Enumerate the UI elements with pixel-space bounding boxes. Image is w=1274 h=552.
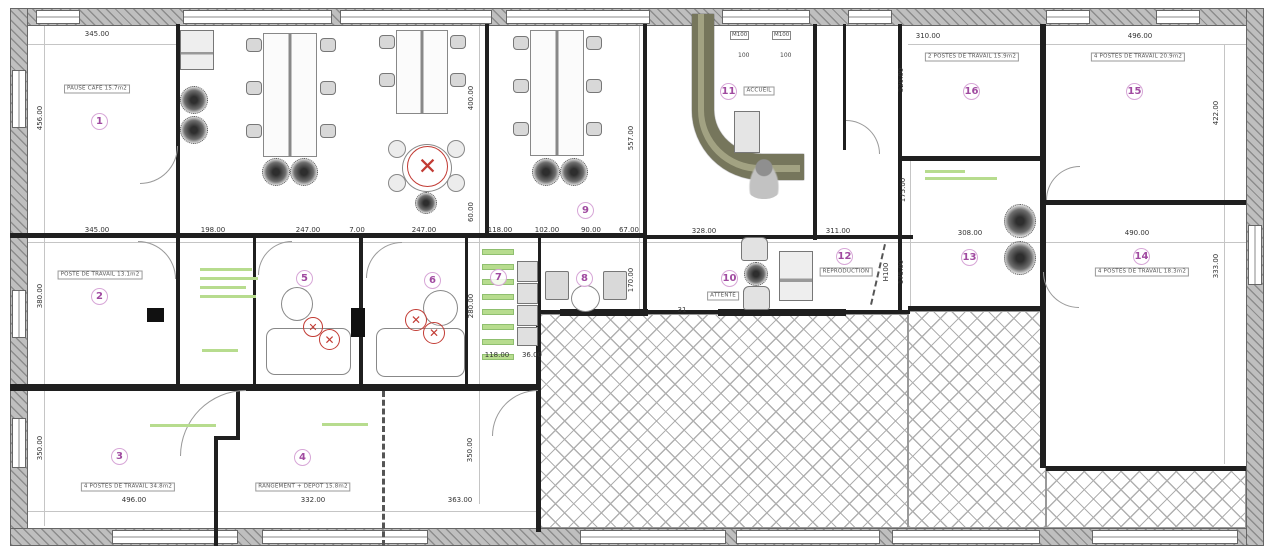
door-marker-value: 100 <box>780 52 791 59</box>
kitchen-unit <box>517 305 538 326</box>
annotation-green <box>200 268 252 271</box>
dimension-label: 350.00 <box>36 424 44 472</box>
room-number-badge: 7 <box>490 269 507 286</box>
room-number-badge: 2 <box>91 288 108 305</box>
toilet <box>423 290 458 326</box>
plant-icon <box>532 158 560 186</box>
room-label: 2 POSTES DE TRAVAIL 15.9m2 <box>925 53 1019 62</box>
interior-wall <box>908 306 1046 311</box>
interior-wall <box>718 309 846 316</box>
dimension-label: 496.00 <box>110 496 158 504</box>
printer-icon <box>779 251 813 301</box>
office-chair <box>379 35 395 49</box>
window <box>340 10 492 24</box>
office-chair <box>379 73 395 87</box>
dimension-label: 496.00 <box>1116 32 1164 40</box>
window <box>1092 530 1238 544</box>
interior-wall <box>176 238 180 386</box>
dimension-line <box>1046 44 1246 45</box>
office-chair <box>586 36 602 50</box>
room-label: POSTE DE TRAVAIL 13.1m2 <box>58 271 143 280</box>
dimension-label: 247.00 <box>284 226 332 234</box>
tub-chair <box>388 140 406 158</box>
dimension-label: 67.00 <box>605 226 653 234</box>
interior-wall <box>1046 466 1246 471</box>
door-arc <box>1046 166 1080 200</box>
armchair <box>741 237 768 261</box>
annotation-green <box>322 423 368 426</box>
window <box>580 530 726 544</box>
dimension-label: 60.00 <box>467 188 475 236</box>
window <box>506 10 650 24</box>
dimension-label: 247.00 <box>400 226 448 234</box>
demolition-mark-icon: ✕ <box>423 322 445 344</box>
demolition-mark-icon: ✕ <box>319 329 340 350</box>
door-marker: M100 <box>772 31 791 40</box>
window <box>1248 225 1262 285</box>
desk <box>263 33 317 157</box>
annotation-green <box>200 277 258 280</box>
office-chair <box>586 122 602 136</box>
office-chair <box>320 124 336 138</box>
door-marker-value: 100 <box>738 52 749 59</box>
dimension-label: 36.00 <box>508 351 556 359</box>
office-chair <box>246 81 262 95</box>
plant-icon <box>560 158 588 186</box>
dimension-label: 333.00 <box>1212 242 1220 290</box>
office-chair <box>320 81 336 95</box>
room-number-badge: 3 <box>111 448 128 465</box>
window <box>1046 10 1090 24</box>
pedestal <box>734 111 760 153</box>
column <box>147 308 164 322</box>
desk <box>396 30 448 114</box>
room-number-badge: 11 <box>720 83 737 100</box>
dimension-line <box>28 44 178 45</box>
door-marker: M100 <box>730 31 749 40</box>
room-label: REPRODUCTION <box>820 268 873 277</box>
dimension-label: 345.00 <box>73 226 121 234</box>
interior-wall <box>560 309 648 316</box>
dimension-label: 308.00 <box>946 229 994 237</box>
window <box>12 290 26 338</box>
office-chair <box>246 124 262 138</box>
office-chair <box>513 122 529 136</box>
plant-icon <box>1004 241 1036 275</box>
couch <box>376 328 465 377</box>
door-arc <box>1043 272 1079 308</box>
room-number-badge: 8 <box>576 270 593 287</box>
annotation-green <box>200 295 256 298</box>
window <box>36 10 80 24</box>
interior-wall <box>900 156 1042 161</box>
dimension-label: 490.00 <box>1113 229 1161 237</box>
room-label: 4 POSTES DE TRAVAIL 34.8m2 <box>81 483 175 492</box>
room-number-badge: 5 <box>296 270 313 287</box>
dimension-label: 198.00 <box>189 226 237 234</box>
door-arc <box>846 120 880 154</box>
room-number-badge: 9 <box>577 202 594 219</box>
interior-wall <box>10 384 540 391</box>
room-label: ACCUEIL <box>744 87 775 96</box>
unsurveyed-hatch-area <box>1046 470 1246 528</box>
shelf-green <box>482 324 514 330</box>
annotation-green <box>925 177 997 180</box>
office-chair <box>450 35 466 49</box>
armchair <box>743 286 770 310</box>
dimension-label: 332.00 <box>289 496 337 504</box>
demolition-mark-icon: ✕ <box>407 146 448 187</box>
dimension-label: 422.00 <box>1212 89 1220 137</box>
window <box>736 530 880 544</box>
annotation-green <box>150 424 216 427</box>
dimension-label: 170.00 <box>627 256 635 304</box>
window <box>12 418 26 468</box>
room-number-badge: 1 <box>91 113 108 130</box>
room-label: 4 POSTES DE TRAVAIL 20.9m2 <box>1091 53 1185 62</box>
interior-wall <box>645 235 913 239</box>
interior-wall <box>1046 200 1246 205</box>
dimension-label: 310.00 <box>904 32 952 40</box>
annotation-green <box>202 349 238 352</box>
side-table <box>545 271 569 300</box>
side-table <box>603 271 627 300</box>
room-number-badge: 12 <box>836 248 853 265</box>
plant-icon <box>290 158 318 186</box>
person-icon <box>743 153 785 199</box>
dimension-label: 363.00 <box>436 496 484 504</box>
dimension-label: 400.00 <box>467 74 475 122</box>
dimension-label: 7.00 <box>333 226 381 234</box>
interior-wall <box>643 238 647 314</box>
interior-wall <box>538 236 541 312</box>
plant-icon <box>1004 204 1036 238</box>
tub-chair <box>447 140 465 158</box>
interior-wall <box>643 24 647 238</box>
door-arc <box>138 241 176 279</box>
unsurveyed-hatch-area <box>908 311 1046 528</box>
interior-wall <box>813 24 817 240</box>
room-label: PAUSE CAFE 15.7m2 <box>64 85 130 94</box>
room-number-badge: 4 <box>294 449 311 466</box>
interior-wall <box>1040 24 1046 468</box>
kitchen-unit <box>517 327 538 346</box>
window <box>112 530 238 544</box>
dimension-label: 380.00 <box>36 272 44 320</box>
dimension-label: 175.00 <box>899 166 907 214</box>
printer-icon <box>180 30 214 70</box>
window <box>848 10 892 24</box>
kitchen-unit <box>517 261 538 282</box>
office-chair <box>320 38 336 52</box>
shelf-green <box>482 339 514 345</box>
floor-plan-canvas: ✕✕✕✕✕345.00310.00496.00456.00380.00350.0… <box>0 0 1274 552</box>
annotation-green <box>200 286 246 289</box>
dimension-label: 102.00 <box>523 226 571 234</box>
shelf-green <box>482 294 514 300</box>
dimension-label: 557.00 <box>627 114 635 162</box>
window <box>892 530 1040 544</box>
room-label: ATTENTE <box>707 292 739 301</box>
dimension-label: 328.00 <box>680 227 728 235</box>
shelf-green <box>482 249 514 255</box>
small-round-table <box>571 285 600 312</box>
room-number-badge: 16 <box>963 83 980 100</box>
door-arc <box>140 146 178 184</box>
room-label: 4 POSTES DE TRAVAIL 18.3m2 <box>1095 268 1189 277</box>
room-number-badge: 6 <box>424 272 441 289</box>
dimension-label: 31 <box>658 306 706 314</box>
office-chair <box>586 79 602 93</box>
dimension-line <box>910 160 911 306</box>
kitchen-unit <box>517 283 538 304</box>
dimension-label: 118.00 <box>476 226 524 234</box>
tub-chair <box>388 174 406 192</box>
office-chair <box>450 73 466 87</box>
office-chair <box>246 38 262 52</box>
dimension-line <box>479 26 480 504</box>
dimension-label: 175.00 <box>897 248 905 296</box>
dimension-label: 311.00 <box>814 227 862 235</box>
room-number-badge: 15 <box>1126 83 1143 100</box>
window <box>1156 10 1200 24</box>
room-label: RANGEMENT + DEPOT 15.8m2 <box>255 483 350 492</box>
room-number-badge: 14 <box>1133 248 1150 265</box>
shelf-green <box>482 309 514 315</box>
dimension-label: 280.00 <box>467 282 475 330</box>
window <box>12 70 26 128</box>
dimension-label: H100 <box>882 248 890 296</box>
dimension-label: 320.00 <box>897 56 905 104</box>
dimension-line <box>908 44 1040 45</box>
door-arc <box>180 390 246 456</box>
door-arc <box>258 241 292 275</box>
dimension-line <box>1224 44 1225 464</box>
dimension-label: 345.00 <box>73 30 121 38</box>
office-chair <box>513 79 529 93</box>
dashed-wall <box>382 391 385 546</box>
plant-icon <box>180 86 208 114</box>
toilet <box>281 287 313 321</box>
window <box>183 10 332 24</box>
column <box>351 308 365 337</box>
desk <box>530 30 584 156</box>
window <box>262 530 428 544</box>
interior-wall <box>485 24 489 238</box>
plant-icon <box>415 192 437 214</box>
dimension-line <box>28 242 1246 243</box>
dimension-label: 456.00 <box>36 94 44 142</box>
dimension-line <box>639 26 640 312</box>
dimension-line <box>44 26 45 526</box>
room-number-badge: 13 <box>961 249 978 266</box>
door-arc <box>492 390 538 436</box>
dimension-label: 350.00 <box>466 426 474 474</box>
unsurveyed-hatch-area <box>540 314 908 528</box>
room-number-badge: 10 <box>721 270 738 287</box>
dimension-line <box>28 511 538 512</box>
tub-chair <box>447 174 465 192</box>
door-arc <box>366 242 402 278</box>
interior-wall <box>253 236 256 386</box>
annotation-green <box>925 170 965 173</box>
plant-icon <box>262 158 290 186</box>
office-chair <box>513 36 529 50</box>
plant-icon <box>180 116 208 144</box>
plant-icon <box>744 262 768 286</box>
